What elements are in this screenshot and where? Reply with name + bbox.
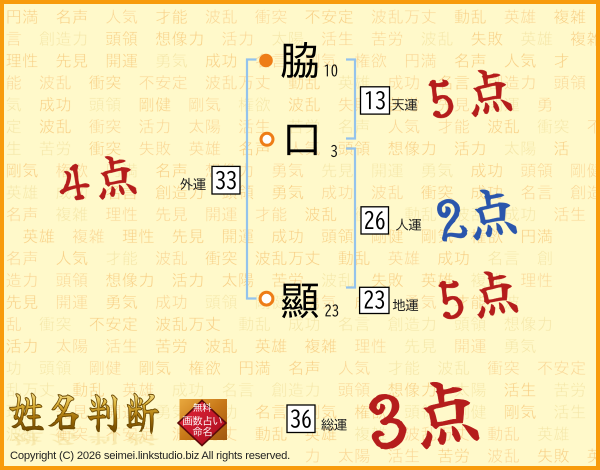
svg-text:Copyright (C) 2026 seimei.link: Copyright (C) 2026 seimei.linkstudio.biz… — [10, 450, 290, 462]
